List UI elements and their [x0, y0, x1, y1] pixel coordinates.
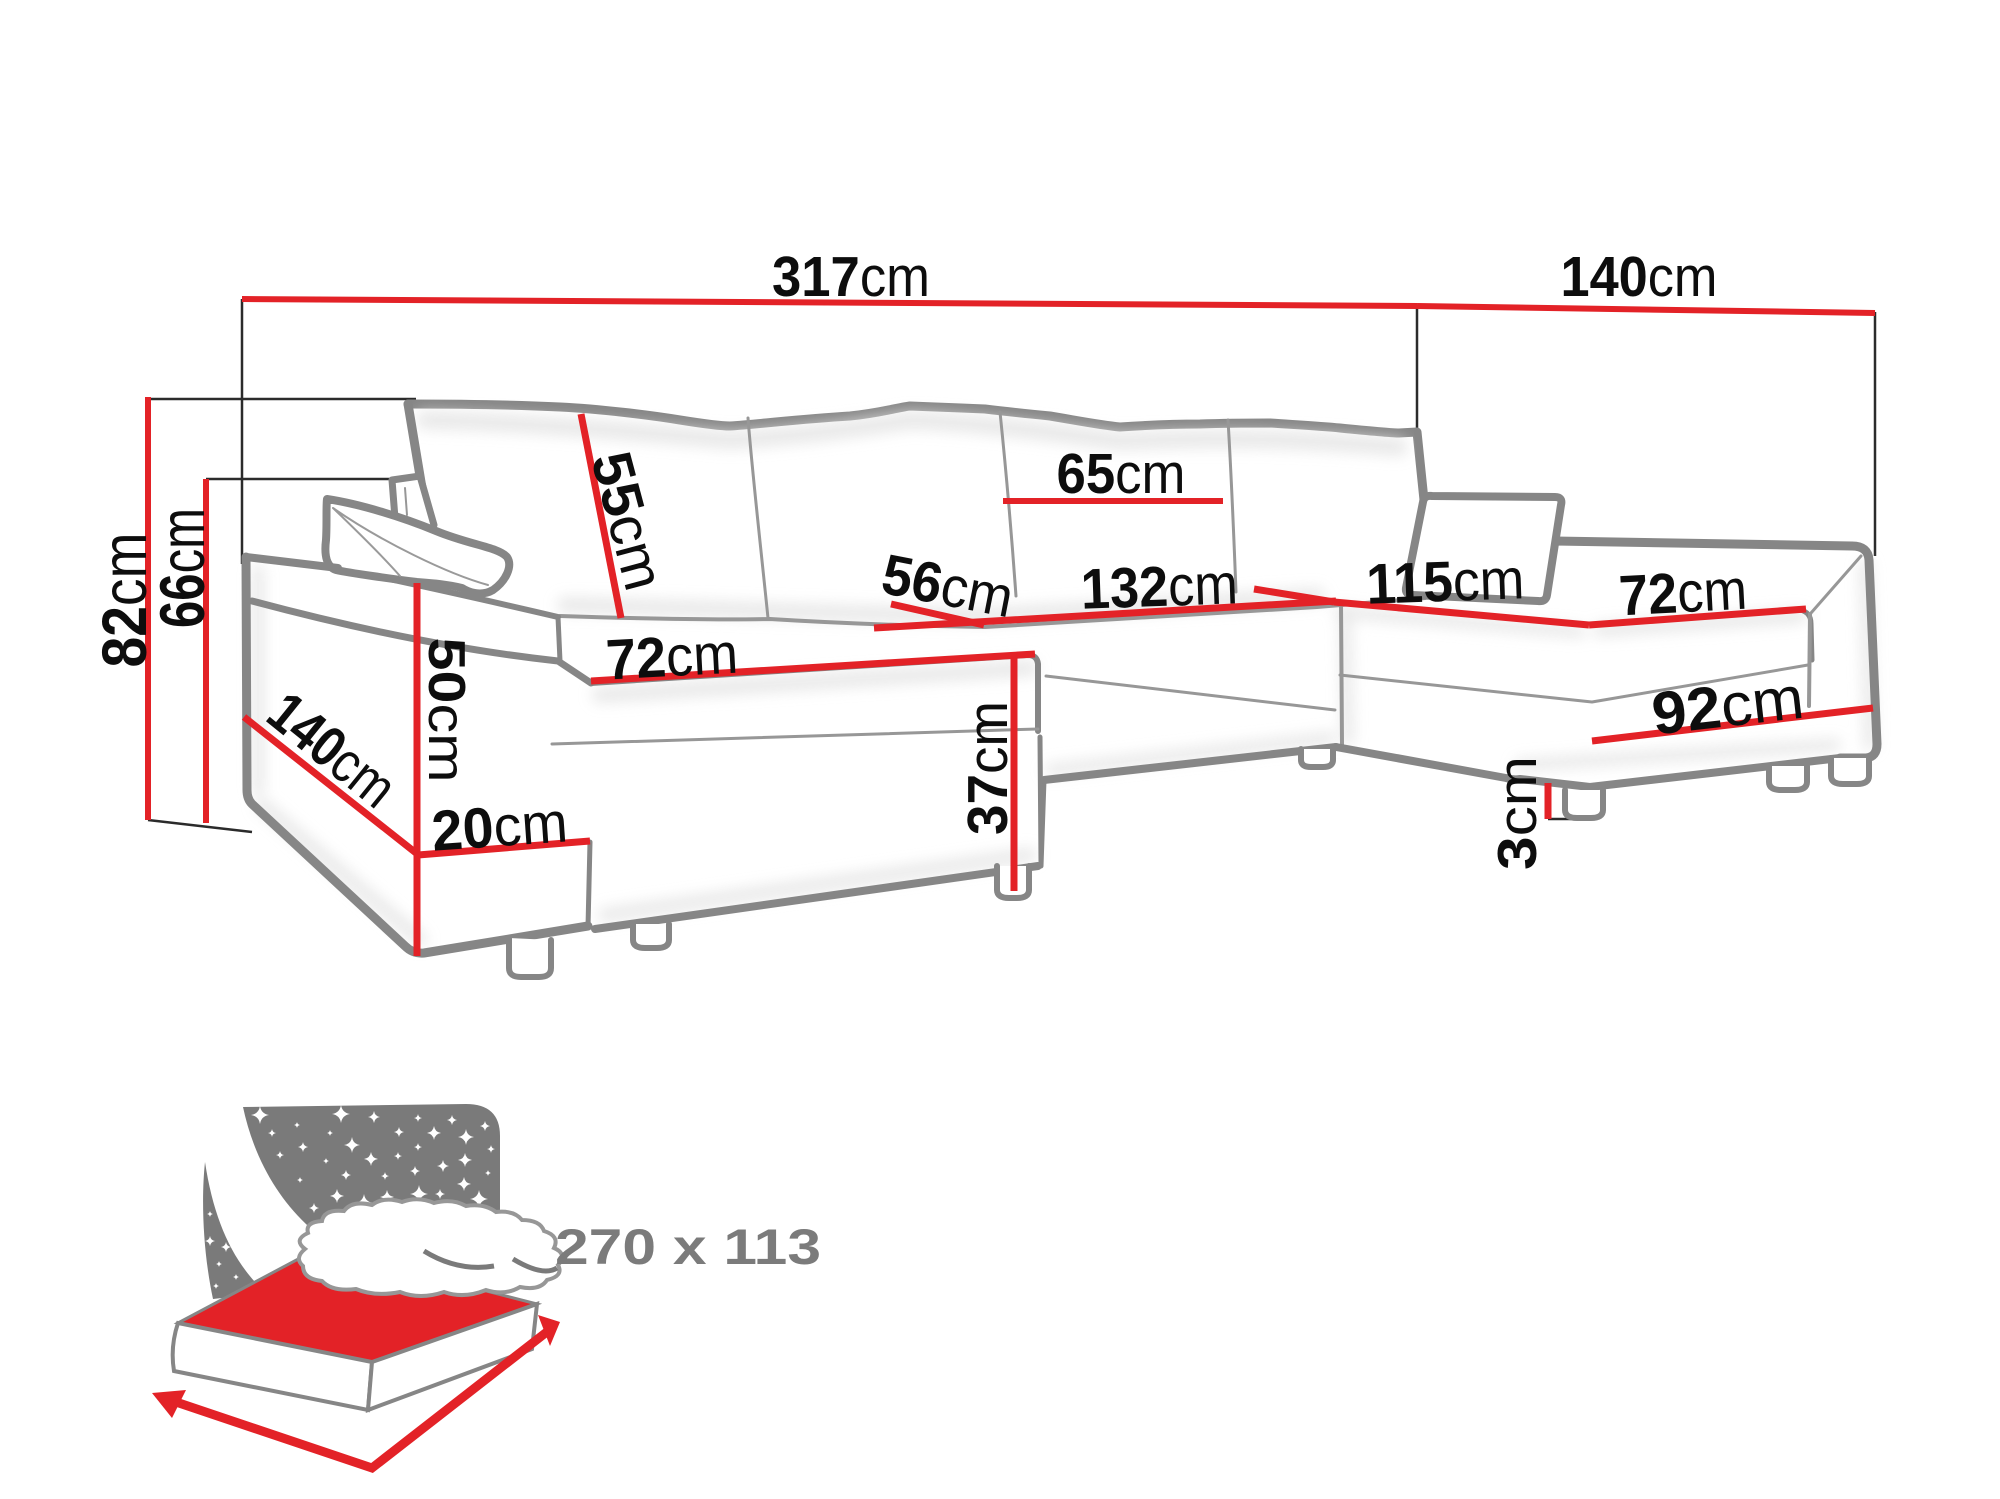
- svg-text:3cm: 3cm: [1486, 756, 1548, 870]
- svg-text:65cm: 65cm: [1057, 442, 1186, 506]
- svg-text:37cm: 37cm: [956, 701, 1020, 835]
- svg-text:20cm: 20cm: [430, 790, 570, 863]
- svg-text:317cm: 317cm: [772, 245, 930, 309]
- svg-text:132cm: 132cm: [1080, 552, 1239, 621]
- svg-text:66cm: 66cm: [148, 508, 218, 628]
- svg-text:115cm: 115cm: [1365, 547, 1525, 616]
- svg-text:270 x 113: 270 x 113: [555, 1219, 821, 1275]
- svg-text:72cm: 72cm: [604, 622, 739, 693]
- svg-text:50cm: 50cm: [417, 638, 475, 783]
- svg-text:140cm: 140cm: [1561, 245, 1718, 309]
- svg-text:72cm: 72cm: [1617, 558, 1748, 629]
